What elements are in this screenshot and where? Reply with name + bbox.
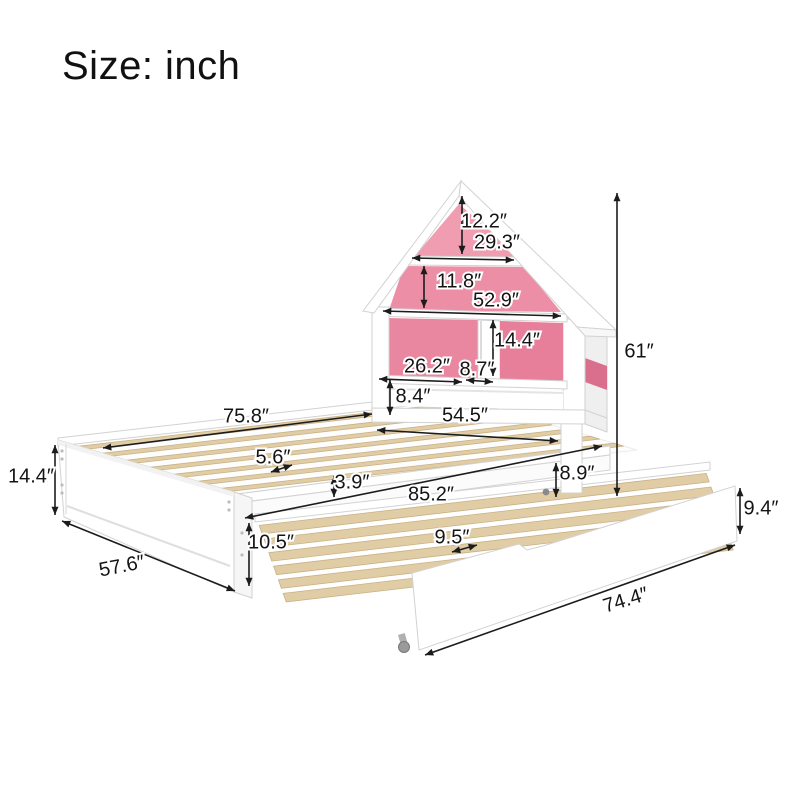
dimension-label-headboard-width: 54.5″ [442, 404, 488, 426]
dimension-label-trundle-length: 74.4″ [601, 583, 651, 617]
dimension-label-shelf-compartment-height: 14.4″ [494, 329, 540, 351]
trundle-lock-bracket [543, 489, 550, 496]
dimension-label-frame-height: 14.4″ [8, 465, 54, 487]
caster-wheel [398, 633, 409, 652]
dimension-label-roof-upper-width: 29.3″ [474, 231, 520, 253]
dimension-label-bed-width: 57.6″ [97, 551, 146, 581]
dimension-label-trundle-slat-spacing: 9.5″ [435, 526, 470, 548]
dimension-label-trundle-height: 10.5″ [248, 531, 294, 553]
dimension-trundle-panel-height: 9.4″ [736, 488, 778, 534]
dimension-label-divider-shelf-width: 8.7″ [460, 358, 495, 380]
dimension-label-lower-shelf-height: 8.4″ [396, 385, 431, 407]
dimension-label-rail-thickness: 3.9″ [335, 471, 370, 493]
dimension-label-eaves-width: 52.9″ [473, 289, 519, 311]
dimension-label-under-bed-clearance: 8.9″ [560, 462, 595, 484]
dimension-rail-thickness: 3.9″ [330, 471, 369, 497]
product-dimension-diagram: Size: inch [0, 0, 800, 800]
dimension-label-total-height: 61″ [624, 340, 653, 362]
bed-diagram: 12.2″29.3″11.8″52.9″14.4″26.2″8.7″8.4″54… [0, 0, 800, 800]
dimension-frame-height: 14.4″ [8, 445, 59, 515]
left-wall-post [372, 307, 389, 418]
dimension-label-bed-length: 75.8″ [223, 405, 269, 427]
dimension-label-left-shelf-width: 26.2″ [404, 355, 450, 377]
dimension-label-trundle-panel-height: 9.4″ [744, 497, 779, 519]
dimension-label-slat-spacing: 5.6″ [256, 446, 291, 468]
dimension-label-roof-peak-height: 12.2″ [461, 210, 507, 232]
dimension-label-extended-length: 85.2″ [408, 483, 454, 505]
